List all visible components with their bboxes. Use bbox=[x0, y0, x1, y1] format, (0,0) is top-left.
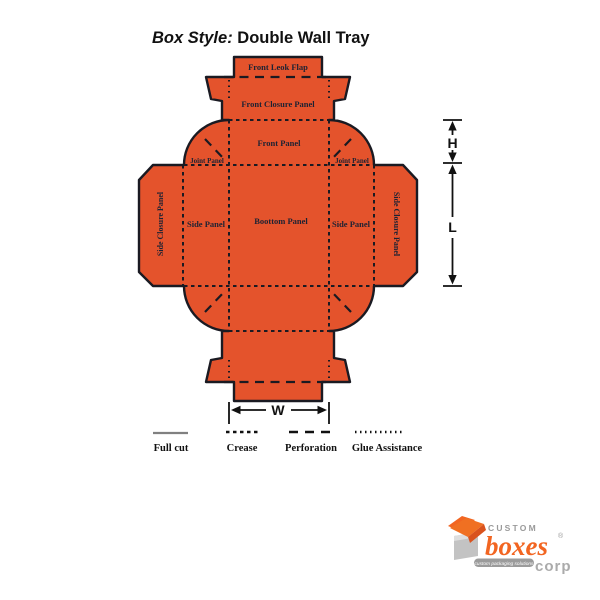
logo-word-corp: corp bbox=[535, 558, 572, 575]
legend-label-glue-assistance: Glue Assistance bbox=[352, 443, 423, 454]
label-joint-panel-left: Joint Panel bbox=[190, 157, 224, 165]
logo-tagline: custom packaging solutions bbox=[475, 561, 535, 567]
legend-label-perforation: Perforation bbox=[285, 443, 337, 454]
label-front-closure-panel: Front Closure Panel bbox=[241, 99, 315, 109]
open-box-icon bbox=[448, 516, 486, 560]
legend-label-crease: Crease bbox=[227, 443, 258, 454]
label-bottom-panel: Boottom Panel bbox=[254, 216, 308, 226]
label-joint-panel-right: Joint Panel bbox=[335, 157, 369, 165]
logo-word-boxes: boxes bbox=[485, 531, 548, 561]
page-title: Box Style: Double Wall Tray bbox=[152, 29, 370, 47]
dimension-l-label: L bbox=[448, 219, 457, 235]
dimension-w-label: W bbox=[271, 402, 285, 418]
diagram-page: Box Style: Double Wall Tray Front Leok F… bbox=[0, 0, 600, 600]
label-front-lock-flap: Front Leok Flap bbox=[248, 62, 308, 72]
dimension-h-label: H bbox=[447, 135, 457, 151]
label-front-panel: Front Panel bbox=[257, 138, 301, 148]
title-prefix: Box Style: bbox=[152, 29, 237, 47]
label-side-panel-right: Side Panel bbox=[332, 219, 371, 229]
label-side-closure-panel-right: Side Closure Panel bbox=[392, 192, 401, 257]
logo-registered-mark: ® bbox=[558, 532, 564, 540]
label-side-panel-left: Side Panel bbox=[187, 219, 226, 229]
legend: Full cut Crease Perforation Glue Assista… bbox=[153, 432, 422, 454]
label-side-closure-panel-left: Side Closure Panel bbox=[156, 191, 165, 256]
company-logo: CUSTOM boxes ® custom packaging solution… bbox=[448, 516, 572, 575]
die-cut-drawing: Box Style: Double Wall Tray Front Leok F… bbox=[0, 0, 600, 600]
legend-label-full-cut: Full cut bbox=[154, 443, 189, 454]
title-name: Double Wall Tray bbox=[237, 29, 370, 47]
